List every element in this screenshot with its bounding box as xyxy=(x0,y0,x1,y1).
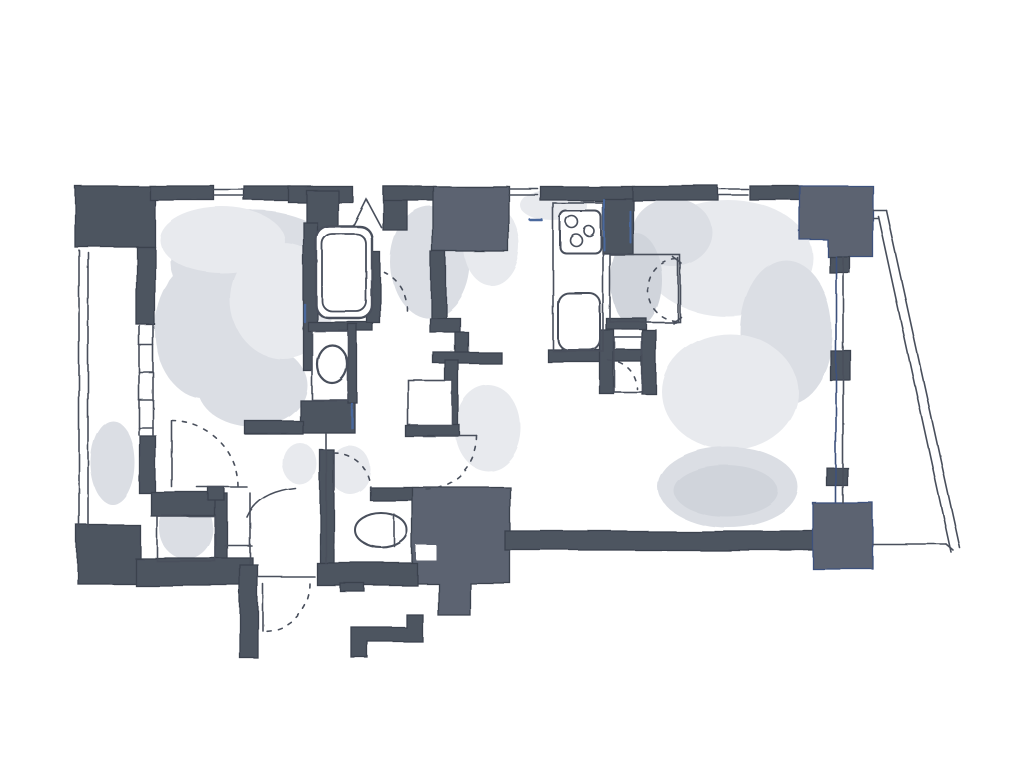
wall-closet-top xyxy=(151,492,217,516)
wall-kitchen-jamb xyxy=(603,198,633,254)
wall-corner-chunk xyxy=(300,400,355,433)
balcony-diagonal-2 xyxy=(878,216,951,552)
wall-window-mullion-a xyxy=(830,257,850,273)
wall-closet-step xyxy=(208,487,224,500)
wall-cabinet-jamb-l xyxy=(600,330,614,394)
wash-ldk-mid xyxy=(662,334,798,450)
bathtub-outer xyxy=(316,226,372,318)
wall-top-g xyxy=(750,186,802,200)
toilet-bowl xyxy=(355,513,407,547)
wall-bedroom-bottom xyxy=(245,421,303,434)
wall-left-lower xyxy=(139,435,155,493)
vanity-basin-oval xyxy=(317,345,347,383)
washer-pan xyxy=(408,380,452,425)
wall-top-f xyxy=(632,186,718,200)
wash-ldk-sofa-core xyxy=(674,466,778,516)
wall-bedroom-bottom-bar xyxy=(135,558,253,585)
stove xyxy=(560,211,601,253)
wall-wash-bar xyxy=(433,352,501,363)
wall-top-a xyxy=(150,186,214,200)
wall-top-left-block xyxy=(75,186,155,247)
wall-window-mullion-b xyxy=(830,350,850,380)
bath-door-triangle xyxy=(352,199,381,227)
floor-plan-canvas xyxy=(0,0,1024,774)
wall-bottom-left-block xyxy=(77,525,140,583)
wall-bottom-tooth xyxy=(340,583,364,591)
wall-bottom-right xyxy=(505,531,815,550)
wash-left-wall xyxy=(90,420,134,504)
wall-vanity-right xyxy=(348,324,357,403)
wall-wash-stub-a xyxy=(430,318,460,332)
door-arc-genkan xyxy=(263,584,310,631)
door-arc-bedroom xyxy=(172,421,238,487)
wall-closet-right xyxy=(215,493,227,565)
wall-bath-divider xyxy=(308,322,373,331)
wall-recess-bottom xyxy=(606,318,646,329)
wall-toilet-left xyxy=(320,450,334,563)
wall-kitchen-block xyxy=(433,186,509,252)
wash-hall-lower xyxy=(455,385,521,471)
wash-bedroom-5 xyxy=(160,207,284,273)
balcony-diagonal-1 xyxy=(886,210,960,548)
genkan-step-curve xyxy=(247,488,295,517)
wall-left-upper xyxy=(137,247,155,325)
wall-window-mullion-c xyxy=(827,468,848,486)
wall-shaft-notch xyxy=(416,545,436,560)
cabinet-outline xyxy=(614,337,642,392)
wall-cabinet-jamb-r xyxy=(642,330,656,394)
wash-genkan xyxy=(283,443,317,485)
wall-washroom-left-kitchen xyxy=(431,252,446,320)
wall-bottom-center xyxy=(317,563,417,585)
wall-pillar xyxy=(813,503,873,569)
kitchen-sink xyxy=(558,293,600,350)
wall-toilet-top xyxy=(370,487,418,500)
wall-entry-zigzag xyxy=(352,615,423,658)
wall-washer-bottom xyxy=(405,425,460,436)
floor-plan-drawing xyxy=(0,0,1024,774)
wall-top-b xyxy=(244,186,290,200)
wall-entry-left xyxy=(240,565,258,658)
